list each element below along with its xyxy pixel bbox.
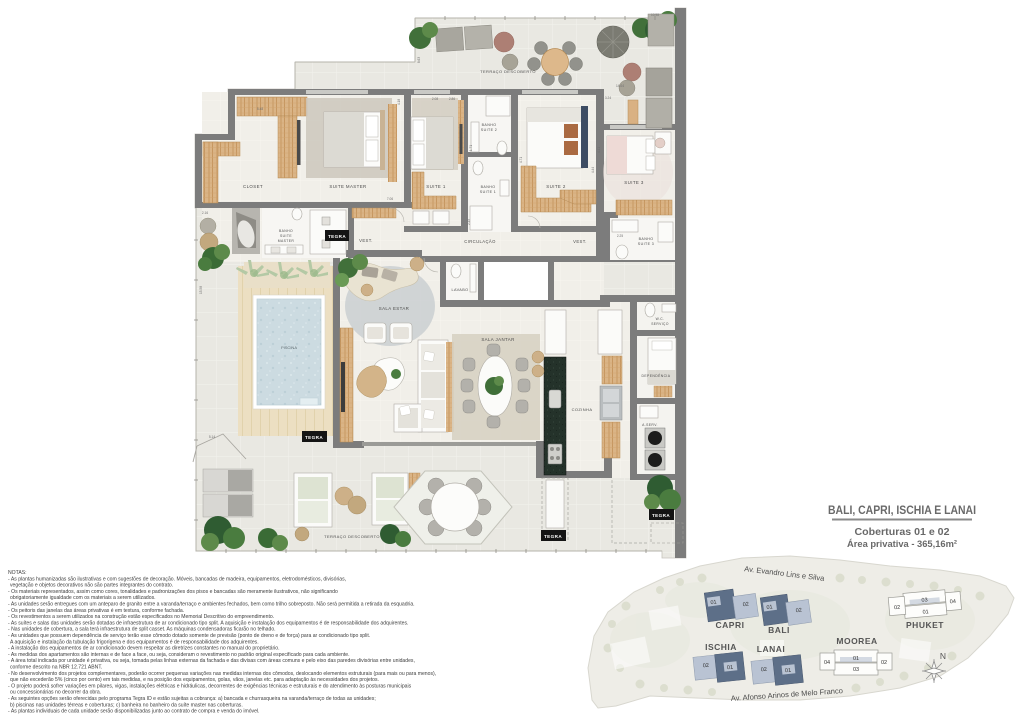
svg-text:LAVABO: LAVABO [451,288,468,292]
svg-text:02: 02 [894,605,901,612]
svg-text:- O projeto poderá sofrer vari: - O projeto poderá sofrer variações em p… [8,683,412,689]
svg-text:ISCHIA: ISCHIA [705,642,737,652]
svg-text:TEGRA: TEGRA [328,234,346,239]
svg-text:SUITE 3: SUITE 3 [624,180,644,185]
svg-text:SERVIÇO: SERVIÇO [651,322,669,326]
svg-text:01: 01 [727,665,734,672]
svg-text:02: 02 [881,660,887,666]
svg-text:NOTAS:: NOTAS: [8,570,27,576]
svg-text:8.63: 8.63 [417,57,421,63]
svg-text:- As unidades serão entregues: - As unidades serão entregues com um ant… [8,602,415,608]
svg-text:- As suítes e salas das unidad: - As suítes e salas das unidades serão d… [8,620,408,626]
svg-text:Coberturas 01 e 02: Coberturas 01 e 02 [855,526,950,538]
svg-text:- As plantas humanizadas são i: - As plantas humanizadas são ilustrativa… [8,576,346,582]
svg-text:- Os peitoris das janelas das: - Os peitoris das janelas das áreas priv… [8,608,184,614]
svg-text:MOOREA: MOOREA [836,636,877,646]
svg-text:02: 02 [703,663,710,670]
svg-text:4.11: 4.11 [597,147,601,153]
svg-text:LANAI: LANAI [757,644,785,654]
svg-text:1.71: 1.71 [469,145,473,151]
svg-text:2.45: 2.45 [467,219,471,225]
svg-text:BANHO: BANHO [279,229,293,233]
svg-text:- Os revestimentos a serem uti: - Os revestimentos a serem utilizados na… [8,614,274,620]
svg-text:2.08: 2.08 [432,97,438,101]
svg-text:SUITE: SUITE [280,234,292,238]
svg-text:SUITE 2: SUITE 2 [481,128,497,132]
svg-text:SUITE 3: SUITE 3 [638,242,654,246]
svg-text:SALA ESTAR: SALA ESTAR [379,306,410,311]
svg-text:TEGRA: TEGRA [305,435,323,440]
svg-text:b) piscinas nas unidades térre: b) piscinas nas unidades térreas e cober… [10,702,243,708]
svg-text:COZINHA: COZINHA [572,407,593,412]
svg-text:4.44: 4.44 [591,167,595,173]
svg-text:- No desenvolvimento dos proje: - No desenvolvimento dos projetos comple… [8,671,436,677]
svg-text:vegetação e objetos decorativo: vegetação e objetos decorativos não são … [10,583,173,589]
svg-text:A aquisição e instalação da tu: A aquisição e instalação da tubulação fr… [10,639,259,645]
svg-text:VEST.: VEST. [573,239,587,244]
svg-text:2.25: 2.25 [617,234,623,238]
svg-text:TEGRA: TEGRA [544,534,562,539]
svg-text:03: 03 [853,667,859,673]
svg-text:5.48: 5.48 [257,107,263,111]
svg-text:Área privativa - 365,16m²: Área privativa - 365,16m² [847,539,957,550]
svg-text:BANHO: BANHO [481,185,496,189]
svg-text:N: N [940,651,946,661]
svg-text:BALI: BALI [768,625,790,635]
svg-text:VEST.: VEST. [359,238,373,243]
svg-text:01: 01 [710,599,717,606]
svg-text:conforme descrito na NBR 12.72: conforme descrito na NBR 12.721 ABNT. [10,665,102,671]
svg-text:14.04: 14.04 [616,84,624,88]
svg-text:02: 02 [761,667,768,674]
svg-text:3.24: 3.24 [605,96,611,100]
svg-text:SUITE 1: SUITE 1 [480,190,496,194]
svg-text:04: 04 [950,599,957,606]
svg-text:- A área total indicada por un: - A área total indicada por unidade é pr… [8,658,415,664]
svg-text:- As plantas individuais de ca: - As plantas individuais de cada unidade… [8,709,259,715]
svg-text:01: 01 [922,609,929,616]
svg-text:02: 02 [795,607,802,614]
svg-text:01: 01 [853,656,859,662]
svg-text:TERRAÇO DESCOBERTO: TERRAÇO DESCOBERTO [480,69,536,74]
svg-text:- As medidas dos apartamentos: - As medidas dos apartamentos são intern… [8,652,349,658]
svg-text:- As seguintes opções serão of: - As seguintes opções serão oferecidas p… [8,696,376,702]
svg-text:4.71: 4.71 [519,157,523,163]
svg-text:2.16: 2.16 [202,211,208,215]
svg-text:TERRAÇO DESCOBERTO: TERRAÇO DESCOBERTO [324,534,380,539]
svg-text:W.C.: W.C. [656,317,665,321]
svg-text:SUITE 1: SUITE 1 [426,184,446,189]
svg-text:5.14: 5.14 [209,435,215,439]
svg-text:BALI, CAPRI, ISCHIA E LANAI: BALI, CAPRI, ISCHIA E LANAI [828,503,976,517]
svg-text:7.06: 7.06 [387,197,393,201]
svg-text:02: 02 [742,601,749,608]
svg-text:SUITE MASTER: SUITE MASTER [329,184,366,189]
svg-text:15.58: 15.58 [199,286,203,294]
svg-text:BANHO: BANHO [482,123,497,127]
svg-text:SALA JANTAR: SALA JANTAR [481,337,514,342]
svg-text:BANHO: BANHO [639,237,654,241]
svg-text:2.86: 2.86 [449,97,455,101]
svg-text:SUITE 2: SUITE 2 [546,184,566,189]
svg-text:CIRCULAÇÃO: CIRCULAÇÃO [464,239,496,244]
svg-text:- Os materiais representados,: - Os materiais representados, assim como… [8,589,338,595]
svg-text:CLOSET: CLOSET [243,184,263,189]
svg-text:obrigatoriamente igualdade com: obrigatoriamente igualdade com os materi… [10,595,156,601]
svg-text:MASTER: MASTER [278,239,295,243]
svg-text:01: 01 [785,668,792,675]
svg-text:PISCINA: PISCINA [281,345,297,350]
svg-text:4.18: 4.18 [397,99,401,105]
svg-text:DEPENDÊNCIA: DEPENDÊNCIA [642,373,671,378]
svg-text:03: 03 [921,597,928,604]
svg-text:- A instalação dos equipamento: - A instalação dos equipamentos de ar co… [8,646,280,652]
svg-text:que não excederão 5% (cinco po: que não excederão 5% (cinco por cento) e… [10,677,379,683]
svg-text:04: 04 [824,660,830,666]
svg-text:PHUKET: PHUKET [906,620,944,630]
svg-text:CAPRI: CAPRI [716,620,745,630]
svg-text:A.SERV.: A.SERV. [642,423,658,427]
svg-text:01: 01 [766,604,773,611]
svg-text:TEGRA: TEGRA [652,513,670,518]
svg-text:- Nas unidades de cobertura, a: - Nas unidades de cobertura, a sala terá… [8,627,276,633]
svg-text:ou concessionárias no decorrer: ou concessionárias no decorrer da obra. [10,690,101,696]
svg-text:- As unidades que possuem depe: - As unidades que possuem dependência de… [8,633,370,639]
